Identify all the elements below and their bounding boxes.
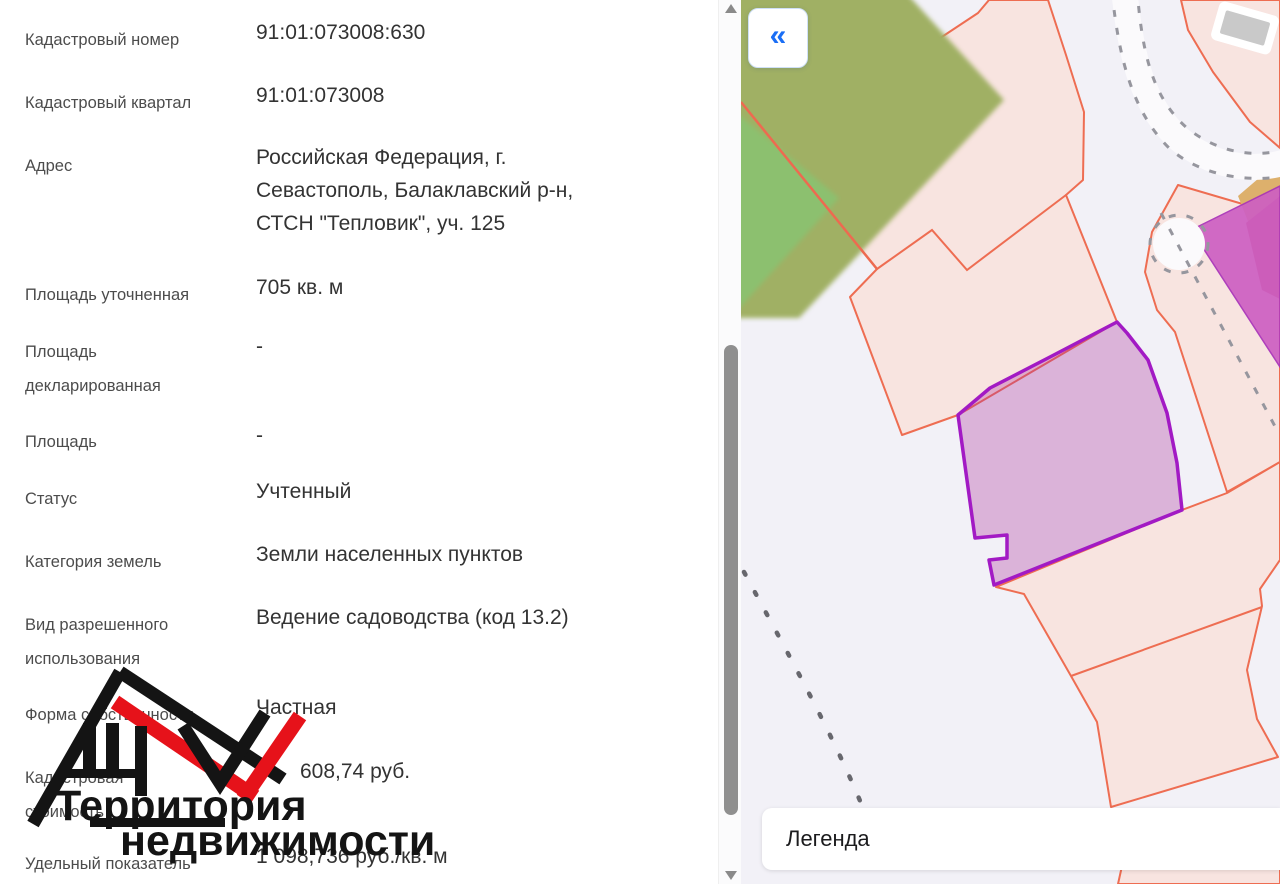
ownership-form-value: Частная: [256, 691, 696, 724]
status-value: Учтенный: [256, 475, 696, 508]
specific-value-label: Удельный показатель: [25, 847, 245, 881]
area-refined-label: Площадь уточненная: [25, 278, 245, 312]
cadastral-quarter-value: 91:01:073008: [256, 79, 696, 112]
address-label: Адрес: [25, 149, 245, 183]
scroll-down-arrow-icon[interactable]: [725, 871, 737, 880]
cadastral-value-value: 608,74 руб.: [300, 755, 740, 788]
double-chevron-left-icon: «: [770, 21, 787, 51]
map-canvas[interactable]: [741, 0, 1280, 884]
cadastral-number-label: Кадастровый номер: [25, 23, 245, 57]
area-refined-value: 705 кв. м: [256, 271, 696, 304]
cadastral-map[interactable]: « Легенда: [741, 0, 1280, 884]
status-label: Статус: [25, 482, 245, 516]
legend-bar[interactable]: Легенда: [762, 808, 1280, 870]
land-category-value: Земли населенных пунктов: [256, 538, 696, 571]
ownership-form-label: Форма собственности: [25, 698, 245, 732]
area-declared-label: Площадь декларированная: [25, 335, 175, 403]
area-label: Площадь: [25, 425, 245, 459]
panel-scrollbar[interactable]: [718, 0, 742, 884]
parcel-info-panel: Кадастровый номер 91:01:073008:630 Кадас…: [0, 0, 718, 884]
scroll-up-arrow-icon[interactable]: [725, 4, 737, 13]
cadastral-quarter-label: Кадастровый квартал: [25, 86, 245, 120]
area-value: -: [256, 419, 696, 452]
land-category-label: Категория земель: [25, 545, 245, 579]
legend-title: Легенда: [762, 826, 870, 852]
cadastral-number-value: 91:01:073008:630: [256, 16, 696, 49]
area-declared-value: -: [256, 330, 696, 363]
address-value: Российская Федерация, г. Севастополь, Ба…: [256, 141, 608, 240]
permitted-use-value: Ведение садоводства (код 13.2): [256, 601, 696, 634]
collapse-panel-button[interactable]: «: [748, 8, 808, 68]
permitted-use-label: Вид разрешенного использования: [25, 608, 175, 676]
scrollbar-thumb[interactable]: [724, 345, 738, 815]
specific-value-value: 1 098,736 руб./кв. м: [256, 840, 696, 873]
cadastral-value-label: Кадастровая стоимость: [25, 761, 175, 829]
